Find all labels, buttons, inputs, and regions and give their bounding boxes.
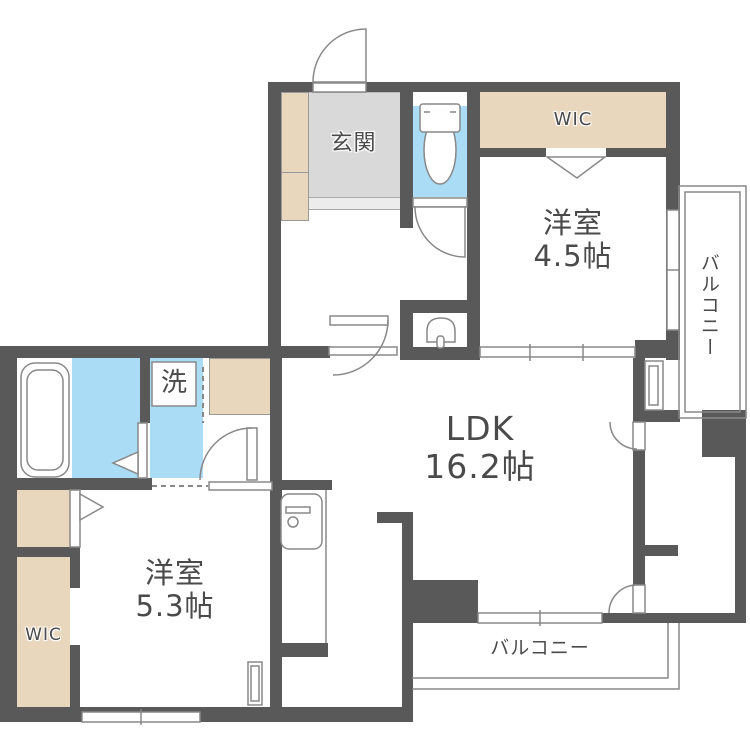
washer-label: 洗: [152, 369, 196, 399]
wic-bottom-door: [70, 588, 80, 645]
basin-icon: [427, 318, 455, 348]
kitchen-counter: [281, 490, 326, 643]
hall-ldk-door: [329, 316, 397, 375]
wic-bottom-label: WIC: [17, 626, 70, 646]
bathroom-door: [113, 423, 147, 478]
entrance-door: [313, 29, 366, 92]
balcony-right-label: バルコニー: [697, 235, 719, 375]
ldk-label: LDK 16.2帖: [380, 410, 580, 486]
bathtub-icon: [21, 363, 69, 477]
service-room-window: [645, 361, 663, 410]
balcony-bottom-label: バルコニー: [440, 638, 640, 660]
ldk-size: 16.2帖: [380, 448, 580, 486]
service-room-upper-door: [610, 422, 645, 450]
bedroom1-sliding-door: [480, 344, 635, 361]
floor-plan: 玄関 WIC 洋室 4.5帖 バルコニー LDK 16.2帖 洗 洋室 5.3帖…: [0, 0, 750, 750]
toilet-icon: [420, 104, 460, 184]
bedroom2-window: [82, 709, 200, 725]
bedroom2-name: 洋室: [80, 557, 270, 590]
bedroom1-window: [667, 210, 679, 330]
wic-top-door: [546, 148, 606, 178]
bedroom1-name: 洋室: [480, 207, 666, 240]
ldk-name: LDK: [380, 410, 580, 448]
genkan-label: 玄関: [307, 131, 400, 156]
bedroom2-closet-door: [70, 490, 103, 547]
bedroom2-side-window: [248, 662, 262, 705]
wic-top-label: WIC: [480, 110, 666, 131]
bedroom2-size: 5.3帖: [80, 590, 270, 623]
service-room-lower-door: [609, 585, 645, 613]
bedroom1-size: 4.5帖: [480, 240, 666, 273]
washroom-door: [200, 428, 272, 490]
toilet-door: [413, 198, 467, 257]
bedroom1-label: 洋室 4.5帖: [480, 207, 666, 274]
ldk-balcony-window: [478, 610, 602, 626]
bedroom2-label: 洋室 5.3帖: [80, 557, 270, 624]
